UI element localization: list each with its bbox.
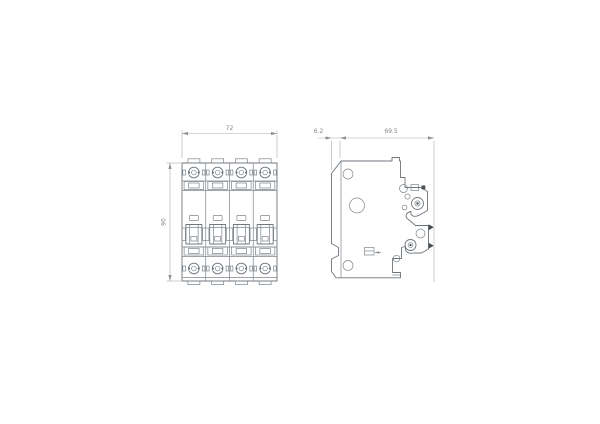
side-depth-label: 69.5 [384, 128, 398, 135]
side-hole [343, 169, 353, 179]
side-hole [350, 198, 365, 213]
dimension-drawing: 72 90 [0, 0, 600, 424]
side-front-offset-label: 6.2 [314, 128, 324, 135]
front-height-dimension: 90 [161, 163, 182, 281]
din-rail-claw [429, 224, 434, 230]
breaker-pole [230, 159, 253, 285]
din-clip-detail [365, 248, 382, 256]
side-view: 6.2 69.5 [314, 128, 434, 282]
breaker-pole [253, 159, 276, 285]
breaker-pole [206, 159, 229, 285]
front-view: 72 90 [161, 125, 278, 285]
din-rail-claw [429, 243, 434, 249]
front-height-label: 90 [161, 218, 168, 226]
side-profile-outline [332, 158, 429, 278]
breaker-pole [182, 159, 205, 285]
front-width-label: 72 [226, 125, 234, 132]
dimension-drawing-canvas: 72 90 [0, 0, 600, 424]
front-width-dimension: 72 [182, 125, 277, 158]
side-hole [343, 261, 353, 271]
